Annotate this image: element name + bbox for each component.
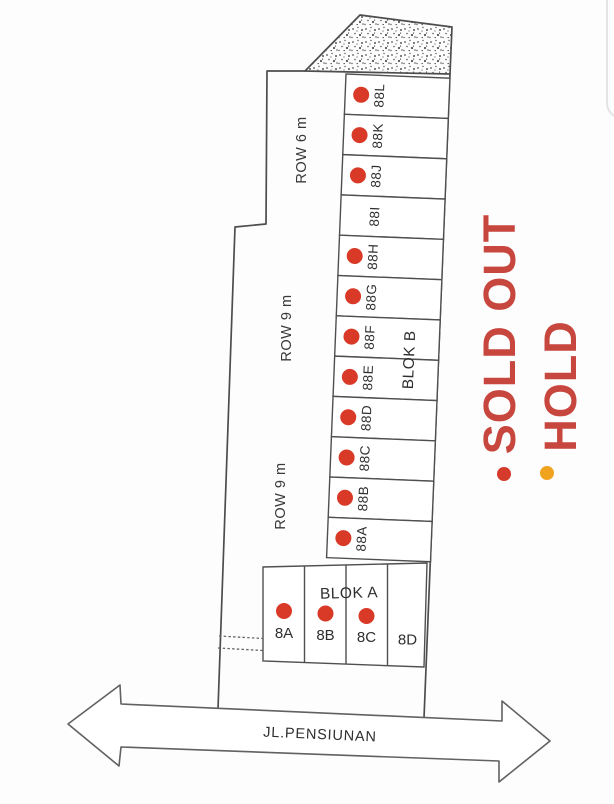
legend-sold-out-dot: [497, 467, 511, 481]
blok-a-label: BLOK A: [320, 584, 379, 603]
lot-label: 88K: [370, 123, 386, 149]
site-plan-svg: 88L88K88J88I88H88G88F88E88D88C88B88A BLO…: [0, 0, 614, 804]
lot-label: 88E: [360, 365, 376, 391]
lot-label: 8B: [316, 627, 334, 644]
blok-b-label: BLOK B: [400, 330, 419, 390]
lot-label: 88L: [371, 83, 387, 108]
sold-dot: [276, 603, 292, 619]
row-label-6m: ROW 6 m: [294, 116, 310, 183]
lot-8D: 8D: [398, 632, 417, 649]
lot-label: 8C: [357, 629, 376, 646]
lot-88B: 88B: [328, 477, 434, 521]
lot-label: 88I: [367, 206, 383, 227]
blok-a: BLOK A 8A8B8C8D: [263, 563, 427, 667]
lot-label: 88B: [355, 485, 371, 511]
sold-dot: [318, 606, 334, 622]
lot-88K: 88K: [343, 114, 449, 158]
row-label-9m-lower: ROW 9 m: [273, 462, 289, 529]
row-label-9m-upper: ROW 9 m: [279, 294, 295, 361]
lot-88F: 88F: [335, 316, 441, 360]
blok-b-lots: 88L88K88J88I88H88G88F88E88D88C88B88A: [327, 74, 450, 562]
lot-label: 88C: [357, 445, 373, 472]
lot-88E: 88E: [333, 356, 439, 400]
lot-88A: 88A: [327, 517, 433, 561]
lot-label: 8D: [398, 632, 417, 649]
lot-label: 88D: [358, 405, 374, 432]
lot-88D: 88D: [331, 396, 437, 440]
lot-label: 88F: [362, 325, 378, 350]
lot-88C: 88C: [330, 437, 436, 481]
site-plan-screenshot: 88L88K88J88I88H88G88F88E88D88C88B88A BLO…: [0, 0, 614, 804]
lot-label: 88J: [368, 164, 384, 188]
lot-label: 88H: [365, 243, 381, 270]
lot-88I: 88I: [340, 195, 446, 239]
lot-88L: 88L: [344, 74, 450, 118]
lot-88H: 88H: [338, 235, 444, 279]
lot-88J: 88J: [341, 155, 447, 199]
lot-88G: 88G: [336, 276, 442, 320]
scrollbar-thumb[interactable]: [606, 0, 614, 119]
lot-label: 88G: [363, 283, 379, 311]
lot-label: 8A: [275, 625, 293, 642]
lot-label: 88A: [354, 526, 370, 552]
legend-hold-dot: [540, 466, 554, 480]
blok-b: 88L88K88J88I88H88G88F88E88D88C88B88A BLO…: [327, 74, 450, 562]
legend-hold-label: HOLD: [535, 320, 586, 452]
legend-sold-out-label: SOLD OUT: [474, 214, 525, 455]
sold-dot: [359, 608, 375, 624]
lot-shape: [340, 195, 446, 239]
